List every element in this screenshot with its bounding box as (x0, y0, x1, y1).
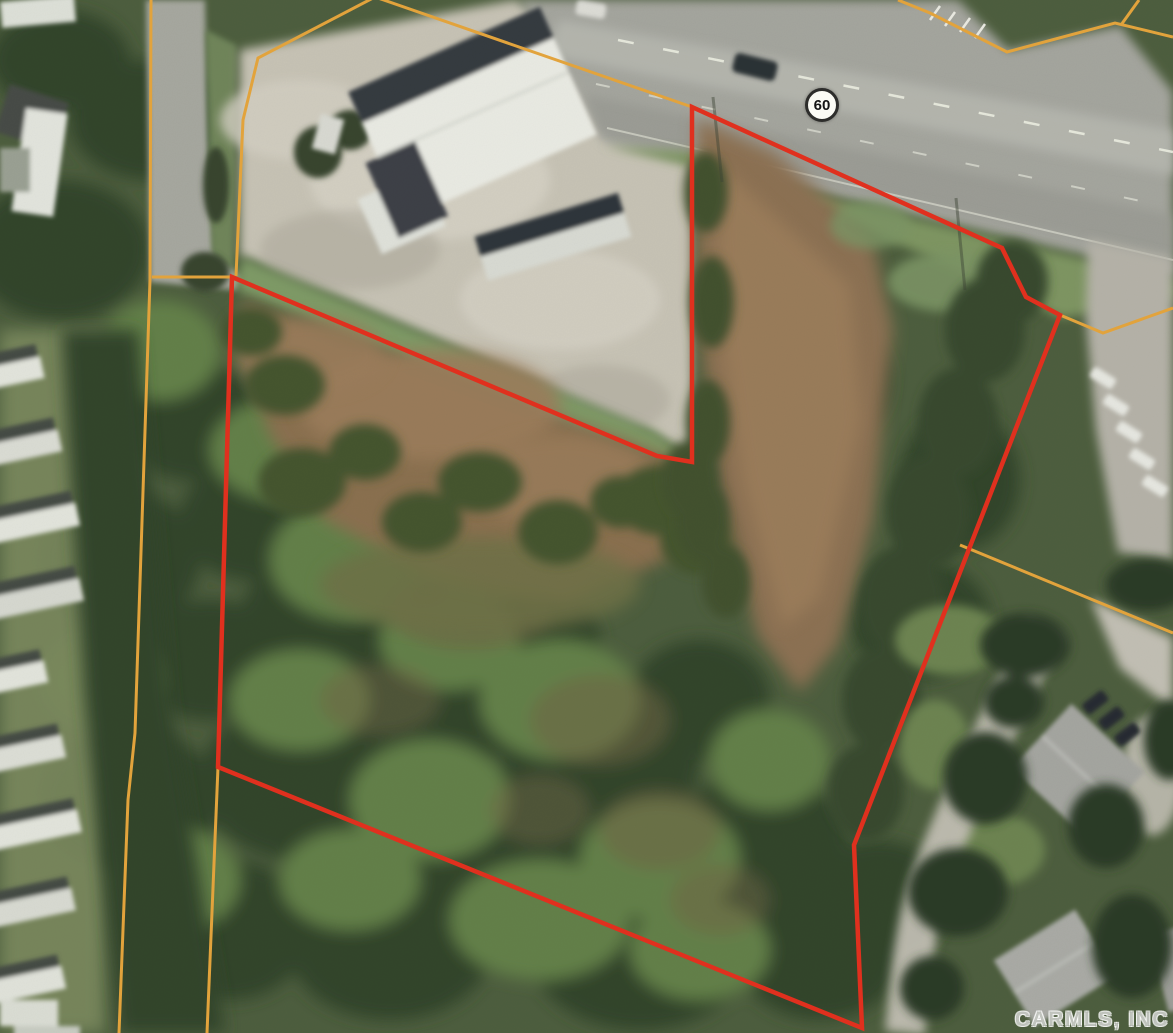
adjacent-parcel-boundary-line (375, 0, 692, 107)
adjacent-parcel-boundary-line (207, 767, 218, 1033)
adjacent-parcel-boundary-line (236, 0, 375, 276)
adjacent-parcel-boundary-line (960, 545, 1173, 633)
parcel-boundary-overlay (0, 0, 1173, 1033)
adjacent-parcel-boundary-line (1060, 308, 1173, 333)
adjacent-parcel-boundary-line (1121, 0, 1139, 25)
subject-parcel-boundary (218, 107, 1060, 1028)
highway-60-shield: 60 (805, 88, 839, 122)
highway-60-label: 60 (814, 97, 831, 114)
watermark: CARMLS, INC (1015, 1008, 1169, 1032)
aerial-parcel-map: 60 CARMLS, INC (0, 0, 1173, 1033)
adjacent-parcel-boundary-line (119, 0, 151, 1033)
